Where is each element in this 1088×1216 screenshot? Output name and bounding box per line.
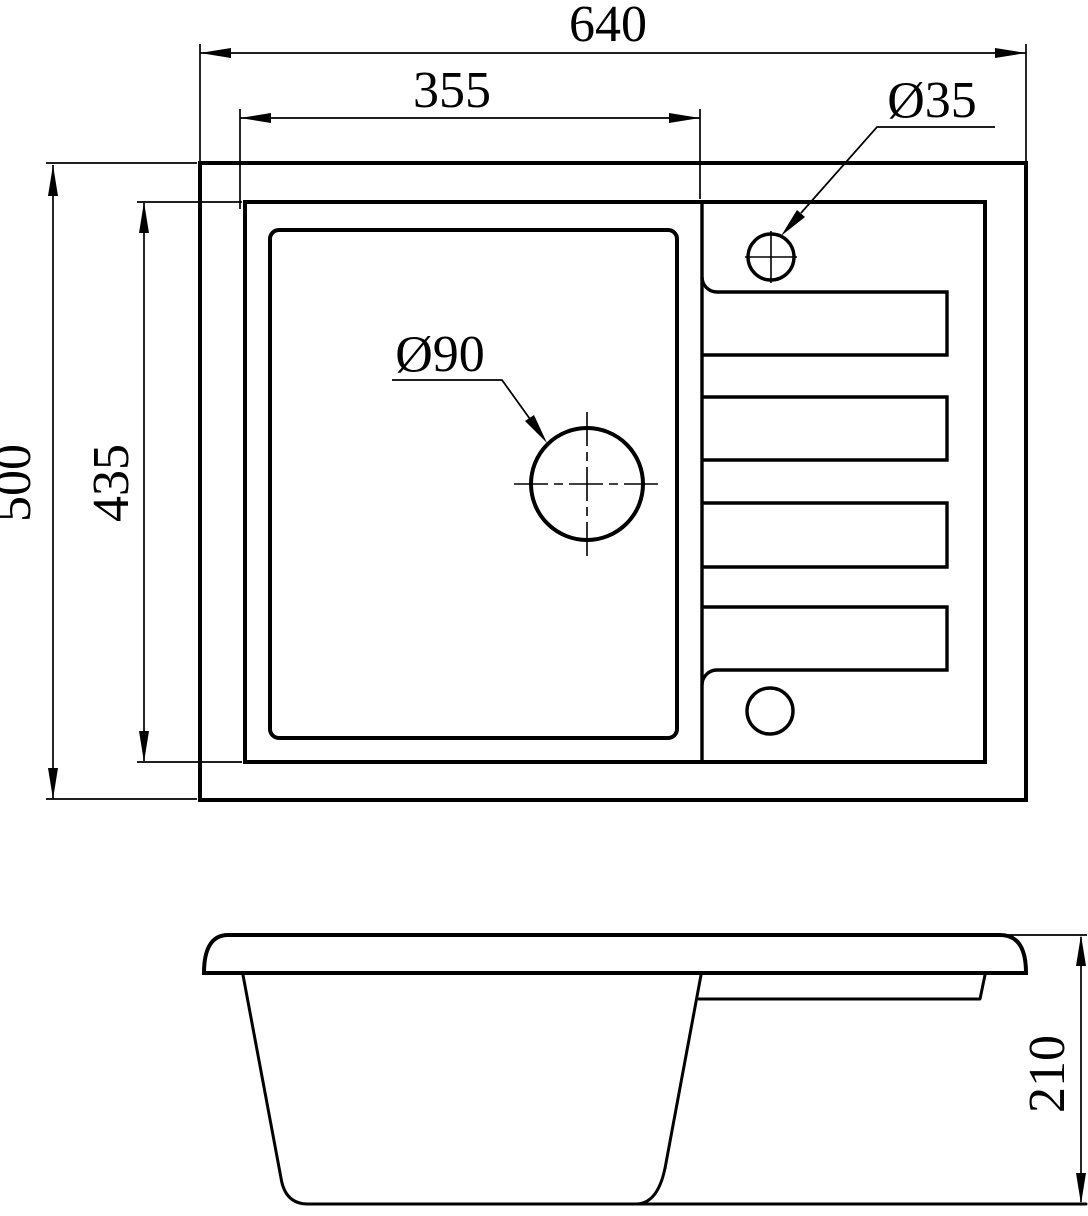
dim-500-arrow-bottom xyxy=(48,768,58,799)
drain-diameter-label: Ø90 xyxy=(395,326,485,383)
drainboard-rib-3 xyxy=(702,503,947,567)
drainboard-rib-1 xyxy=(702,277,947,355)
drawing-canvas: 640 355 500 435 xyxy=(0,0,1088,1216)
dim-355-arrow-left xyxy=(240,113,271,123)
faucet-leader-arrow xyxy=(781,210,805,236)
dim-210-label: 210 xyxy=(1019,1035,1076,1113)
dim-500-label: 500 xyxy=(0,444,42,522)
sink-outer-edge xyxy=(200,163,1026,800)
dim-640-arrow-left xyxy=(200,48,231,58)
dim-inner-depth: 435 xyxy=(83,202,242,762)
lower-hole-circle xyxy=(747,688,793,734)
dim-435-label: 435 xyxy=(83,444,140,522)
dim-bowl-width: 355 xyxy=(240,62,700,209)
side-view: 210 xyxy=(204,935,1087,1204)
sink-technical-drawing: 640 355 500 435 xyxy=(0,0,1088,1216)
drain-leader-line xyxy=(392,380,535,426)
drainboard-rib-2 xyxy=(702,397,947,460)
leader-drain-diameter: Ø90 xyxy=(392,326,547,443)
drain-hole xyxy=(514,412,661,557)
bowl-left-wall xyxy=(243,975,308,1204)
dim-355-label: 355 xyxy=(413,62,491,119)
dim-435-arrow-top xyxy=(139,202,149,233)
drainboard-rib-4 xyxy=(702,607,947,685)
leader-faucet-diameter: Ø35 xyxy=(781,72,995,236)
drainboard-tray-profile xyxy=(699,975,985,999)
dim-210-arrow-top xyxy=(1076,935,1086,966)
rim-inner-edge xyxy=(245,202,985,762)
dim-overall-height: 210 xyxy=(1008,935,1087,1204)
dim-640-arrow-right xyxy=(995,48,1026,58)
top-view: 640 355 500 435 xyxy=(0,0,1026,800)
dim-435-arrow-bottom xyxy=(139,731,149,762)
faucet-hole xyxy=(745,231,797,283)
dim-355-arrow-right xyxy=(669,113,700,123)
drain-leader-arrow xyxy=(525,415,547,443)
dim-210-arrow-bottom xyxy=(1076,1173,1086,1204)
faucet-diameter-label: Ø35 xyxy=(887,72,977,129)
dim-500-arrow-top xyxy=(48,165,58,196)
bowl-right-wall xyxy=(636,975,701,1204)
dim-640-label: 640 xyxy=(569,0,647,53)
rim-profile xyxy=(204,935,1026,973)
